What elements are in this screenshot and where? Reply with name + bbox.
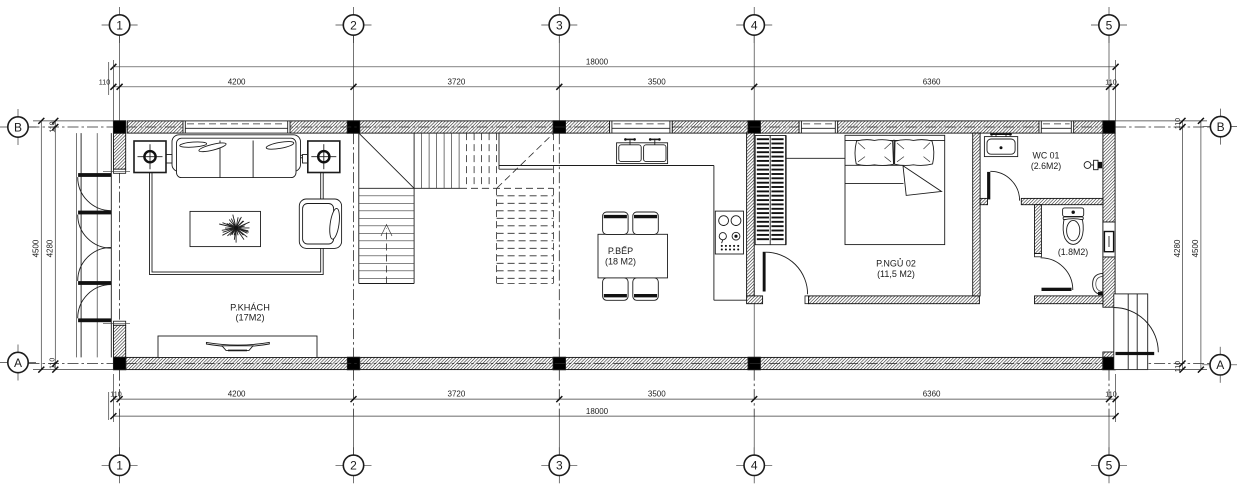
- svg-text:2: 2: [350, 459, 357, 473]
- svg-text:3500: 3500: [648, 77, 666, 86]
- svg-text:4200: 4200: [228, 390, 246, 399]
- svg-text:3: 3: [556, 459, 563, 473]
- svg-text:(1.8M2): (1.8M2): [1058, 247, 1088, 257]
- svg-text:4: 4: [751, 459, 758, 473]
- svg-text:1: 1: [116, 459, 123, 473]
- svg-text:B: B: [1217, 120, 1225, 134]
- svg-text:3720: 3720: [448, 390, 466, 399]
- svg-text:4500: 4500: [32, 239, 41, 257]
- svg-text:P.NGỦ 02: P.NGỦ 02: [876, 257, 916, 268]
- svg-text:2: 2: [350, 18, 357, 32]
- svg-text:B: B: [14, 120, 22, 134]
- svg-text:6360: 6360: [923, 77, 941, 86]
- svg-text:4280: 4280: [46, 239, 55, 257]
- svg-text:P.BẾP: P.BẾP: [608, 246, 633, 256]
- svg-text:110: 110: [99, 77, 110, 86]
- svg-text:(2.6M2): (2.6M2): [1031, 161, 1061, 171]
- svg-text:(11,5 M2): (11,5 M2): [877, 269, 915, 279]
- svg-text:6360: 6360: [923, 390, 941, 399]
- svg-text:4: 4: [751, 18, 758, 32]
- svg-text:110: 110: [1175, 361, 1182, 372]
- svg-text:(17M2): (17M2): [235, 313, 264, 323]
- svg-text:3720: 3720: [448, 77, 466, 86]
- svg-text:18000: 18000: [586, 407, 609, 416]
- svg-text:110: 110: [1175, 118, 1182, 129]
- svg-text:4500: 4500: [1191, 239, 1200, 257]
- svg-text:4200: 4200: [228, 77, 246, 86]
- svg-text:WC 01: WC 01: [1033, 151, 1060, 161]
- svg-text:110: 110: [1105, 77, 1116, 86]
- svg-text:4280: 4280: [1173, 239, 1182, 257]
- svg-text:110: 110: [50, 358, 57, 369]
- svg-text:18000: 18000: [586, 58, 609, 67]
- svg-text:110: 110: [110, 390, 121, 399]
- svg-text:(18 M2): (18 M2): [605, 256, 636, 266]
- svg-text:A: A: [1216, 358, 1224, 372]
- svg-text:3: 3: [556, 18, 563, 32]
- svg-text:110: 110: [50, 121, 57, 132]
- svg-text:A: A: [14, 356, 22, 370]
- svg-text:1: 1: [116, 18, 123, 32]
- svg-text:110: 110: [1105, 390, 1116, 399]
- svg-text:3500: 3500: [648, 390, 666, 399]
- svg-text:5: 5: [1106, 18, 1113, 32]
- svg-text:5: 5: [1106, 459, 1113, 473]
- svg-text:P.KHÁCH: P.KHÁCH: [230, 303, 270, 313]
